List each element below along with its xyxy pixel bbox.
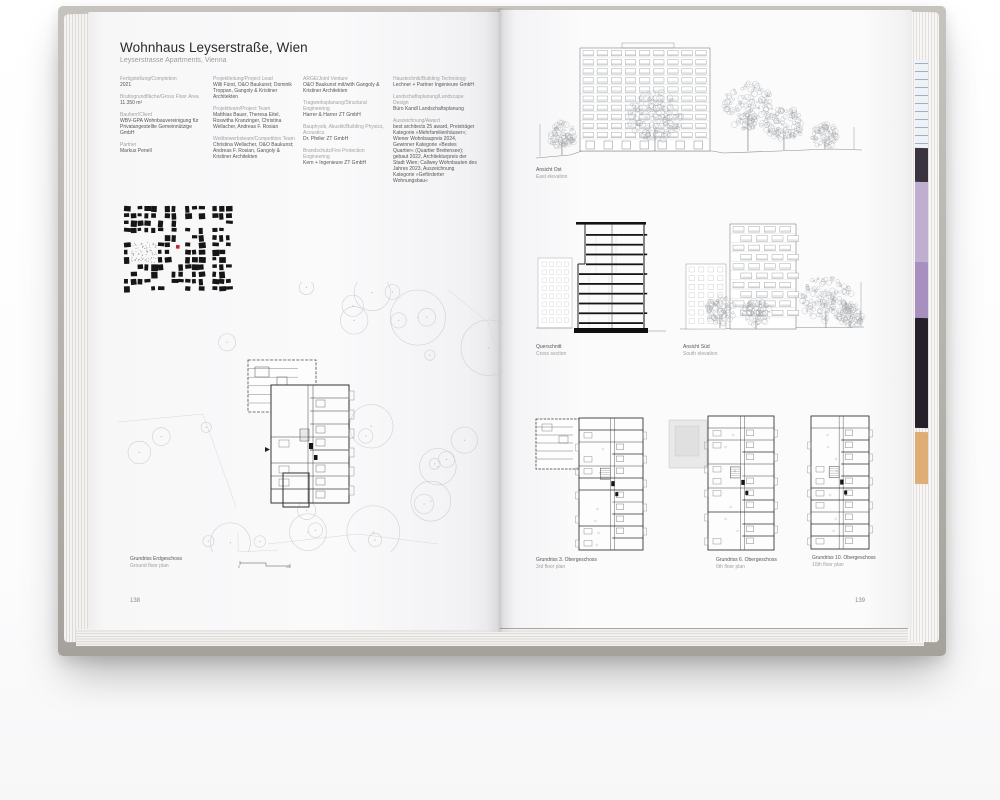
meta-entry: Bauphysik, Akustik/Building Physics, Aco… bbox=[303, 124, 387, 142]
meta-entry: Haustechnik/Building TechnologyLechner +… bbox=[393, 76, 477, 88]
floor-plan-6th-drawing bbox=[668, 412, 778, 554]
east-elevation-drawing bbox=[532, 28, 866, 164]
meta-entry: PartnerMarkus Penell bbox=[120, 142, 204, 154]
south-elevation-drawing bbox=[678, 214, 866, 340]
page-stack-left-edge bbox=[64, 14, 91, 643]
edge-sliver-black bbox=[915, 318, 928, 428]
floor-plan-3rd-drawing bbox=[533, 412, 648, 554]
meta-column-1: Fertigstellung/Completion2021 Bruttogrun… bbox=[120, 76, 204, 160]
page-title: Wohnhaus Leyserstraße, Wien bbox=[120, 40, 308, 55]
page-stack-right-edge bbox=[908, 12, 939, 643]
caption-floor3: Grundriss 3. Obergeschoss 3rd floor plan bbox=[536, 557, 597, 570]
edge-sliver-lavender bbox=[915, 182, 928, 262]
edge-sliver-purple bbox=[915, 262, 928, 318]
meta-entry: Landschaftsplanung/Landscape DesignBüro … bbox=[393, 94, 477, 112]
ground-floor-site-plan-drawing bbox=[118, 282, 503, 552]
caption-cross-section: Querschnitt Cross section bbox=[536, 344, 566, 357]
meta-entry: Fertigstellung/Completion2021 bbox=[120, 76, 204, 88]
meta-entry: Wettbewerbsteam/Competition TeamChristin… bbox=[213, 136, 297, 160]
page-stack-bottom-edge bbox=[76, 629, 924, 646]
right-page-number: 139 bbox=[855, 598, 865, 604]
scale-bar: 0 20 bbox=[236, 559, 296, 571]
scale-end: 20 bbox=[286, 565, 290, 569]
edge-sliver-blue-lines bbox=[915, 60, 928, 150]
page-subtitle: Leyserstrasse Apartments, Vienna bbox=[120, 57, 226, 64]
meta-entry: Projektteam/Project TeamMatthias Bauer, … bbox=[213, 106, 297, 130]
meta-entry: Bauherr/ClientWBV-GPA Wohnbauvereinigung… bbox=[120, 112, 204, 136]
floor-plan-10th-drawing bbox=[806, 413, 878, 553]
caption-ground-floor: Grundriss Erdgeschoss Ground floor plan bbox=[130, 556, 182, 569]
meta-entry: Auszeichnung/Awardbest architects 25 awa… bbox=[393, 118, 477, 184]
scale-start: 0 bbox=[238, 565, 240, 569]
book-photo: Wohnhaus Leyserstraße, Wien Leyserstrass… bbox=[0, 0, 1000, 800]
edge-sliver-dark bbox=[915, 148, 928, 182]
meta-entry: Bruttogrundfläche/Gross Floor Area11.350… bbox=[120, 94, 204, 106]
meta-column-4: Haustechnik/Building TechnologyLechner +… bbox=[393, 76, 477, 190]
caption-east-elevation: Ansicht Ost East elevation bbox=[536, 167, 567, 180]
meta-entry: Brandschutz/Fire Protection EngineeringK… bbox=[303, 148, 387, 166]
caption-floor6: Grundriss 6. Obergeschoss 6th floor plan bbox=[716, 557, 777, 570]
meta-column-3: ARGE/Joint VentureO&O Baukunst mit/with … bbox=[303, 76, 387, 172]
caption-south-elevation: Ansicht Süd South elevation bbox=[683, 344, 717, 357]
edge-sliver-tan bbox=[915, 432, 928, 484]
meta-entry: Tragwerksplanung/Structural EngineeringH… bbox=[303, 100, 387, 118]
meta-entry: Projektleitung/Project LeadWilli Fürst, … bbox=[213, 76, 297, 100]
caption-floor10: Grundriss 10. Obergeschoss 10th floor pl… bbox=[812, 555, 876, 568]
meta-entry: ARGE/Joint VentureO&O Baukunst mit/with … bbox=[303, 76, 387, 94]
cross-section-drawing bbox=[536, 210, 666, 340]
meta-column-2: Projektleitung/Project LeadWilli Fürst, … bbox=[213, 76, 297, 166]
left-page-number: 138 bbox=[130, 598, 140, 604]
